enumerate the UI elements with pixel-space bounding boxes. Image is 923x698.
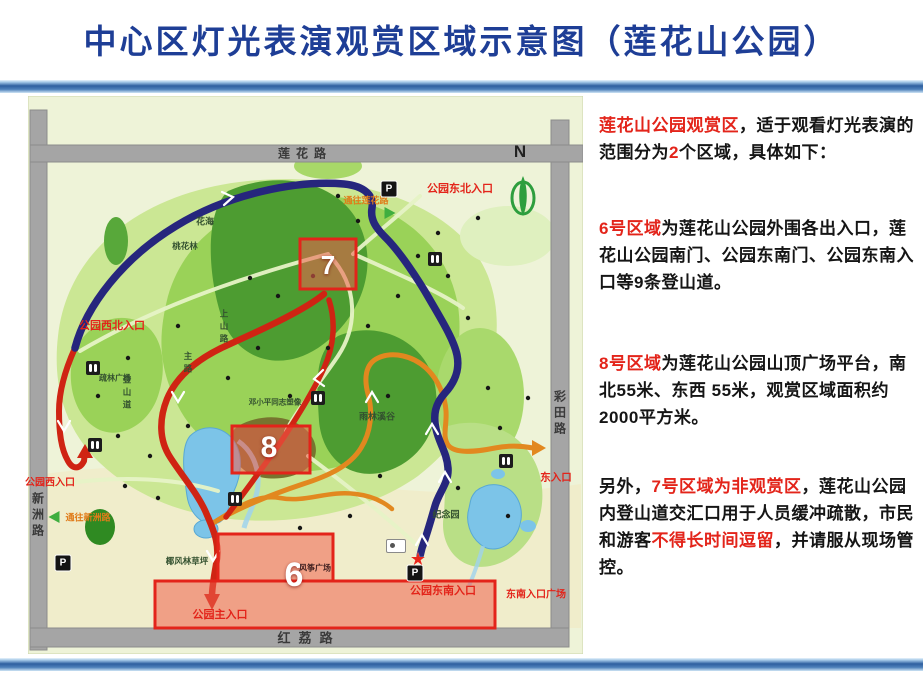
direction-label-to-xinzhou-road: 通往新洲路 <box>65 511 110 524</box>
poi-label-kite-plaza: 风筝广场 <box>299 563 331 574</box>
poi-label-memorial-garden: 纪念园 <box>432 508 459 521</box>
parking-icon: P <box>381 181 398 198</box>
entrance-label-southeast: 公园东南入口 <box>410 582 476 598</box>
parking-icon: P <box>55 555 72 572</box>
divider-bar-top <box>0 80 923 93</box>
slide: 中心区灯光表演观赏区域示意图（莲花山公园） <box>0 0 923 698</box>
trail-label-main-road: 主路 <box>182 352 194 377</box>
trail-label-dengshan-road: 登山道 <box>121 375 133 413</box>
intro-paragraph: 莲花山公园观赏区，适于观看灯光表演的范围分为2个区域，具体如下： <box>599 112 919 166</box>
road-label-xinzhou: 新洲路 <box>30 492 47 540</box>
entrance-label-main: 公园主入口 <box>193 606 248 622</box>
restroom-icon <box>86 361 100 375</box>
poi-label-rainforest-valley: 雨林溪谷 <box>359 410 395 423</box>
region-8-number: 8 <box>261 433 278 463</box>
info-panel: 莲花山公园观赏区，适于观看灯光表演的范围分为2个区域，具体如下： 6号区域为莲花… <box>599 112 919 581</box>
trail-label-shangshan-road: 上山路 <box>218 309 230 347</box>
poi-label-peach-grove: 桃花林 <box>172 240 198 252</box>
restroom-icon <box>311 391 325 405</box>
entrance-label-east: 东入口 <box>540 470 572 485</box>
zone7-paragraph: 另外，7号区域为非观赏区，莲花山公园内登山道交汇口用于人员缓冲疏散，市民和游客不… <box>599 473 919 581</box>
road-label-lianhua: 莲花路 <box>278 145 332 162</box>
compass-icon <box>509 174 537 218</box>
park-map: 7 8 6 莲花路 新洲路 彩田路 红荔路 公园东北入口 公园西北入口 公园西入… <box>28 96 583 654</box>
page-title: 中心区灯光表演观赏区域示意图（莲花山公园） <box>0 12 923 72</box>
performance-star-icon: ★ <box>410 550 426 568</box>
entrance-label-west: 公园西入口 <box>25 474 75 489</box>
zone8-paragraph: 8号区域为莲花山公园山顶广场平台，南北55米、东西 55米，观赏区域面积约200… <box>599 350 919 431</box>
entrance-label-northwest: 公园西北入口 <box>79 317 145 333</box>
poi-label-flower-sea: 花海 <box>196 215 214 228</box>
restroom-icon <box>88 438 102 452</box>
divider-bar-bottom <box>0 658 923 671</box>
green-arrow-left-icon <box>49 511 60 523</box>
compass-north-label: N <box>514 142 526 162</box>
poi-label-coconut-lawn: 椰风林草坪 <box>166 555 209 567</box>
zone6-paragraph: 6号区域为莲花山公园外围各出入口，莲花山公园南门、公园东南门、公园东南入口等9条… <box>599 215 919 296</box>
restroom-icon <box>228 492 242 506</box>
region-7-number: 7 <box>321 252 335 278</box>
camera-icon <box>386 539 406 553</box>
restroom-icon <box>499 454 513 468</box>
green-arrow-right-icon <box>385 207 396 219</box>
restroom-icon <box>428 252 442 266</box>
road-label-caitian: 彩田路 <box>552 390 569 438</box>
road-label-hongli: 红荔路 <box>277 628 340 647</box>
poi-label-deng-statue: 邓小平同志塑像 <box>249 397 302 408</box>
entrance-label-northeast: 公园东北入口 <box>427 180 493 196</box>
entrance-label-southeast-plaza: 东南入口广场 <box>506 586 566 601</box>
